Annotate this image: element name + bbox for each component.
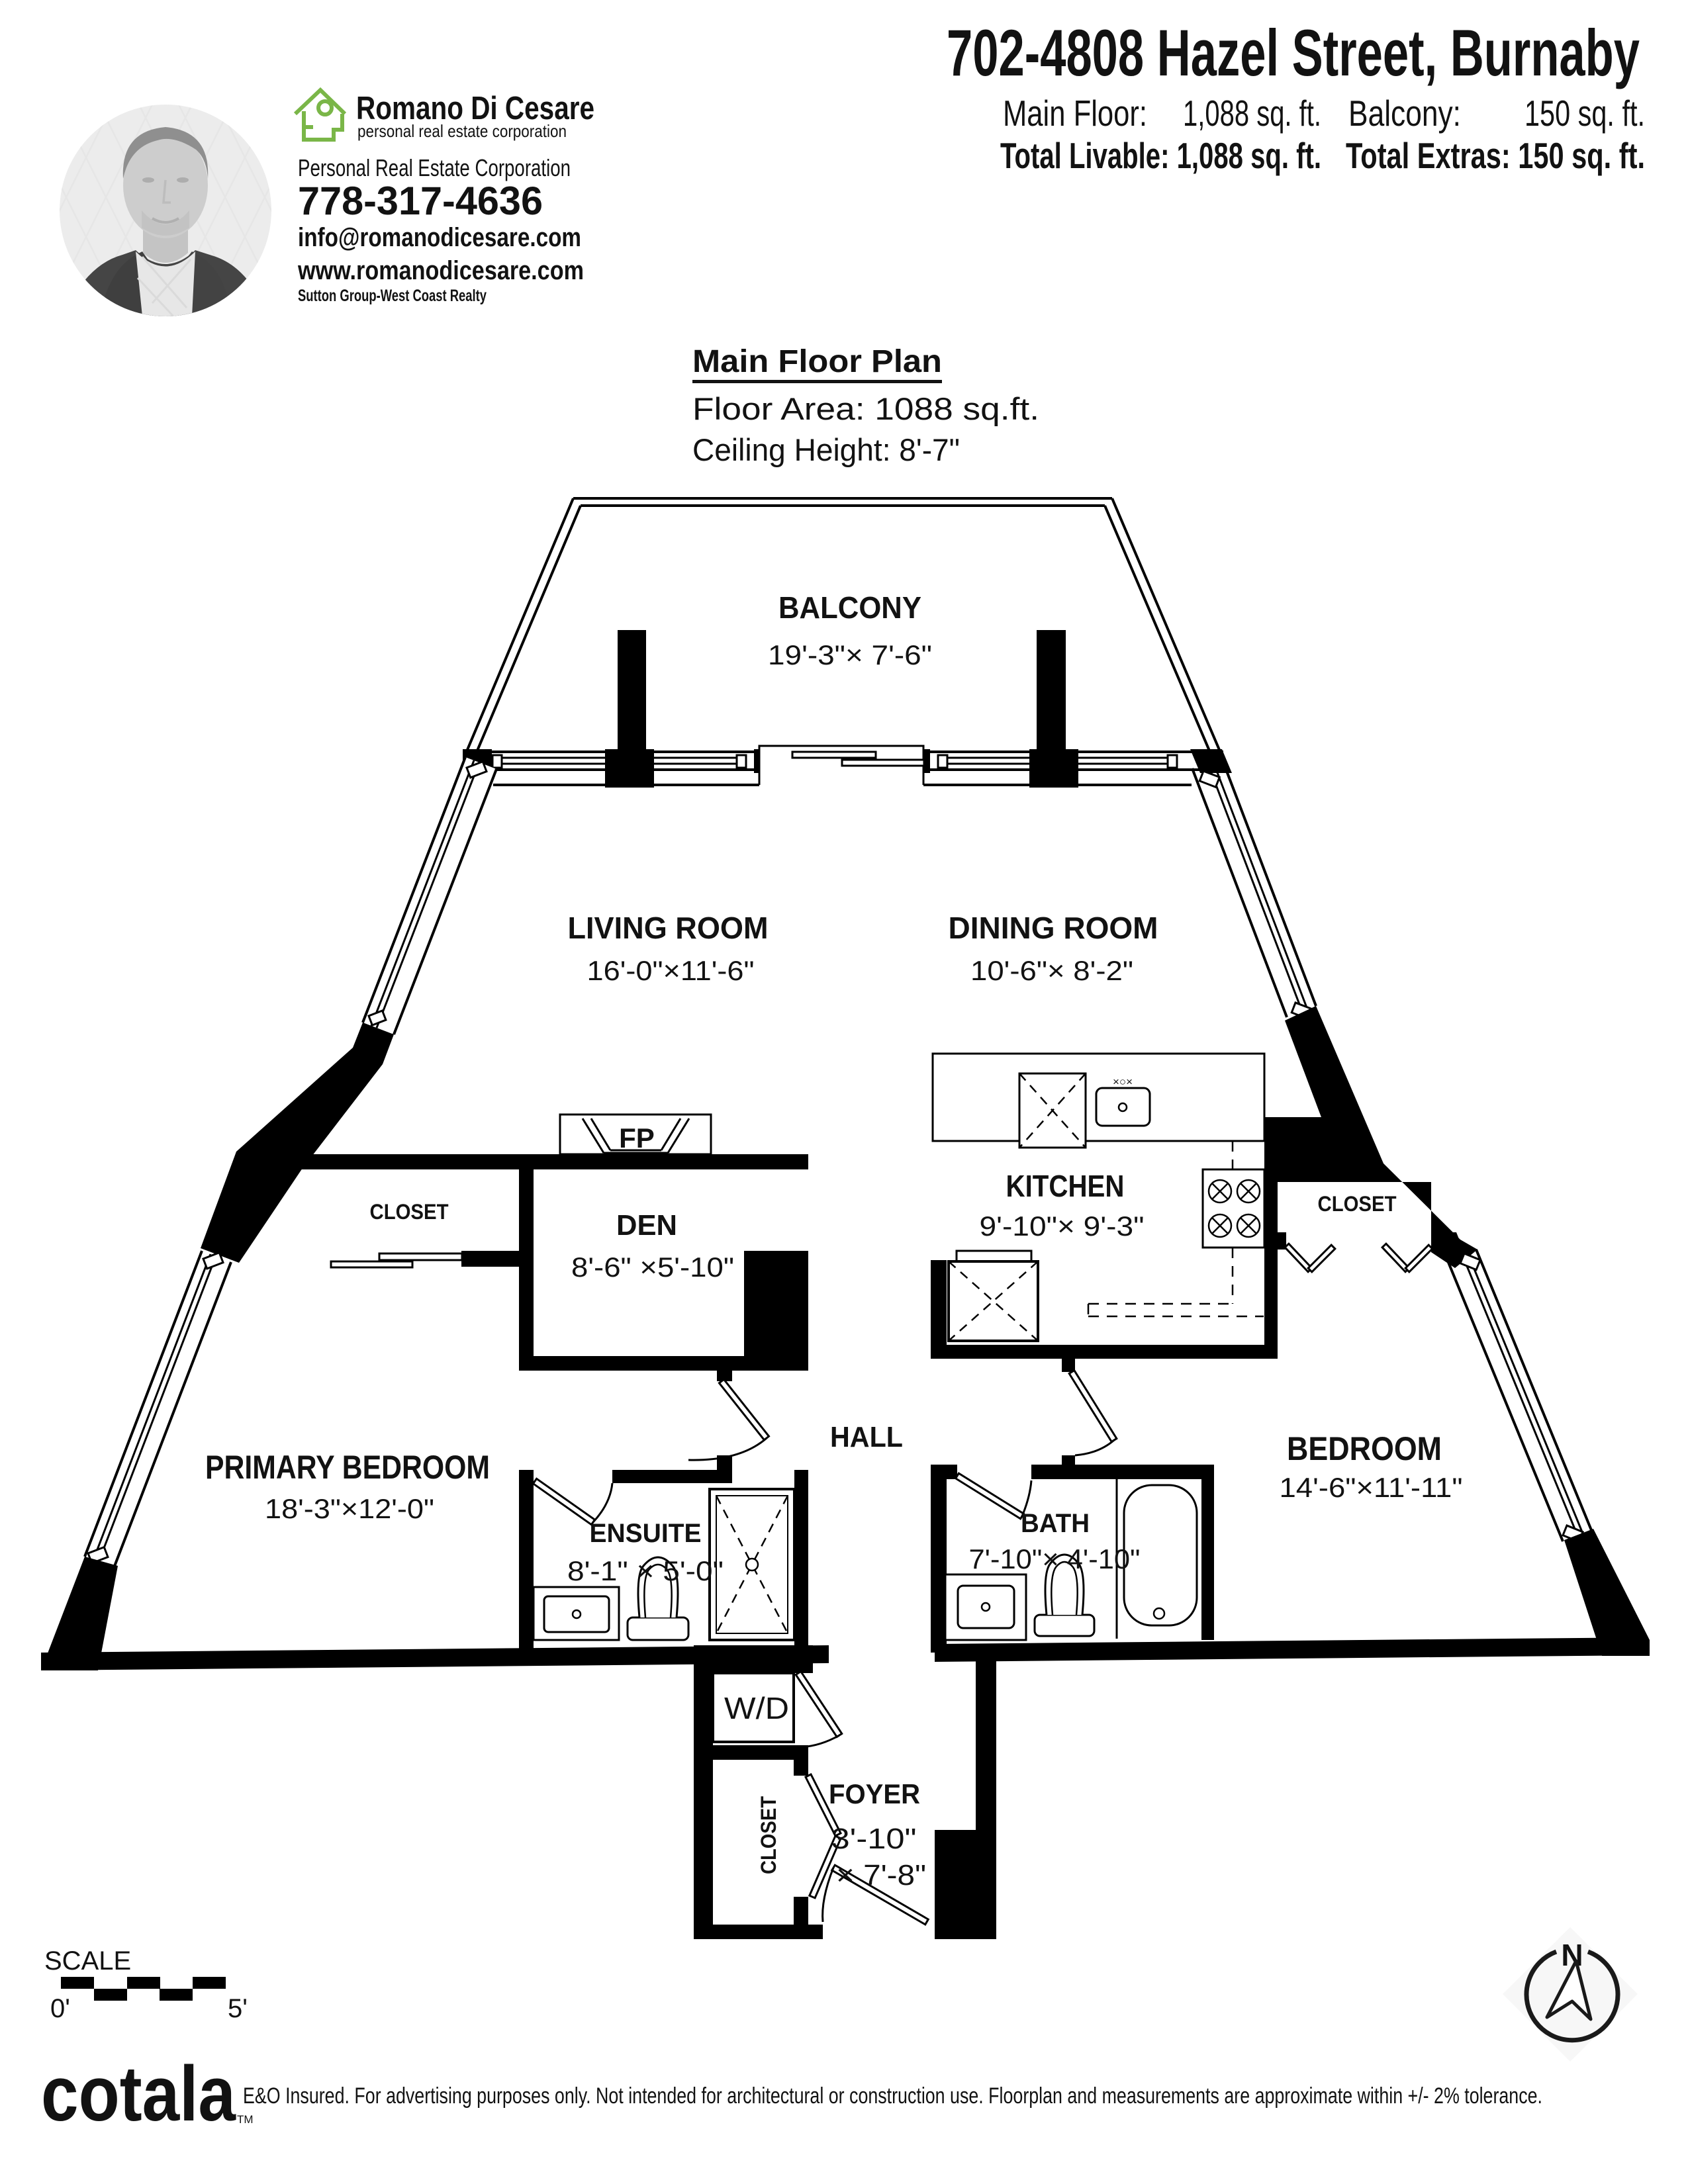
svg-text:BEDROOM: BEDROOM xyxy=(1287,1430,1442,1467)
svg-text:HALL: HALL xyxy=(830,1421,903,1453)
svg-text:Total Extras: 150 sq. ft.: Total Extras: 150 sq. ft. xyxy=(1346,135,1645,176)
svg-text:ENSUITE: ENSUITE xyxy=(590,1519,702,1548)
svg-text:Floor Area: 1088 sq.ft.: Floor Area: 1088 sq.ft. xyxy=(692,391,1039,426)
svg-text:BATH: BATH xyxy=(1021,1509,1090,1538)
svg-text:19'-3"× 7'-6": 19'-3"× 7'-6" xyxy=(768,639,932,670)
svg-text:BALCONY: BALCONY xyxy=(778,590,921,625)
svg-text:14'-6"×11'-11": 14'-6"×11'-11" xyxy=(1280,1472,1463,1503)
svg-text:16'-0"×11'-6": 16'-0"×11'-6" xyxy=(587,955,755,986)
svg-text:7'-10"× 4'-10": 7'-10"× 4'-10" xyxy=(969,1543,1141,1574)
svg-text:www.romanodicesare.com: www.romanodicesare.com xyxy=(297,256,584,285)
svg-text:SCALE: SCALE xyxy=(44,1946,131,1976)
svg-text:E&O Insured. For advertising p: E&O Insured. For advertising purposes on… xyxy=(243,2083,1542,2109)
svg-text:Main Floor Plan: Main Floor Plan xyxy=(692,344,942,379)
svg-text:Total Livable: 1,088 sq. ft.: Total Livable: 1,088 sq. ft. xyxy=(1000,135,1321,176)
svg-text:Sutton Group-West Coast Realty: Sutton Group-West Coast Realty xyxy=(298,287,487,305)
svg-text:18'-3"×12'-0": 18'-3"×12'-0" xyxy=(265,1493,434,1524)
svg-text:PRIMARY BEDROOM: PRIMARY BEDROOM xyxy=(205,1449,490,1486)
svg-text:personal real estate corporati: personal real estate corporation xyxy=(357,121,567,141)
svg-text:KITCHEN: KITCHEN xyxy=(1006,1169,1125,1203)
svg-text:8'-6" ×5'-10": 8'-6" ×5'-10" xyxy=(571,1251,734,1283)
svg-text:TM: TM xyxy=(237,2113,254,2126)
svg-text:cotala: cotala xyxy=(41,2050,236,2138)
svg-text:×○×: ×○× xyxy=(1113,1075,1133,1088)
svg-text:Ceiling Height: 8'-7": Ceiling Height: 8'-7" xyxy=(692,432,960,467)
svg-text:DINING ROOM: DINING ROOM xyxy=(949,911,1158,945)
svg-text:3'-10": 3'-10" xyxy=(831,1823,917,1855)
svg-text:FOYER: FOYER xyxy=(829,1778,920,1809)
svg-text:CLOSET: CLOSET xyxy=(757,1796,780,1874)
svg-text:9'-10"× 9'-3": 9'-10"× 9'-3" xyxy=(980,1210,1145,1242)
svg-text:× 7'-8": × 7'-8" xyxy=(836,1859,926,1891)
svg-text:DEN: DEN xyxy=(616,1209,677,1242)
svg-text:LIVING ROOM: LIVING ROOM xyxy=(568,911,769,945)
svg-text:CLOSET: CLOSET xyxy=(1318,1192,1397,1216)
svg-text:0': 0' xyxy=(50,1994,70,2023)
svg-text:CLOSET: CLOSET xyxy=(370,1200,449,1224)
svg-text:FP: FP xyxy=(619,1122,655,1154)
svg-text:10'-6"× 8'-2": 10'-6"× 8'-2" xyxy=(970,955,1133,986)
svg-text:5': 5' xyxy=(228,1994,248,2023)
svg-text:Main Floor:: Main Floor: xyxy=(1003,93,1147,134)
svg-text:150 sq. ft.: 150 sq. ft. xyxy=(1524,93,1645,134)
svg-text:info@romanodicesare.com: info@romanodicesare.com xyxy=(298,223,581,252)
svg-text:1,088 sq. ft.: 1,088 sq. ft. xyxy=(1183,93,1321,134)
svg-text:8'-1" × 5'-0": 8'-1" × 5'-0" xyxy=(567,1555,724,1586)
svg-text:702-4808 Hazel Street, Burnaby: 702-4808 Hazel Street, Burnaby xyxy=(947,16,1640,89)
svg-text:Personal Real Estate Corporati: Personal Real Estate Corporation xyxy=(298,154,571,181)
svg-text:Balcony:: Balcony: xyxy=(1348,93,1461,134)
svg-text:W/D: W/D xyxy=(724,1691,789,1725)
svg-text:778-317-4636: 778-317-4636 xyxy=(298,179,543,223)
